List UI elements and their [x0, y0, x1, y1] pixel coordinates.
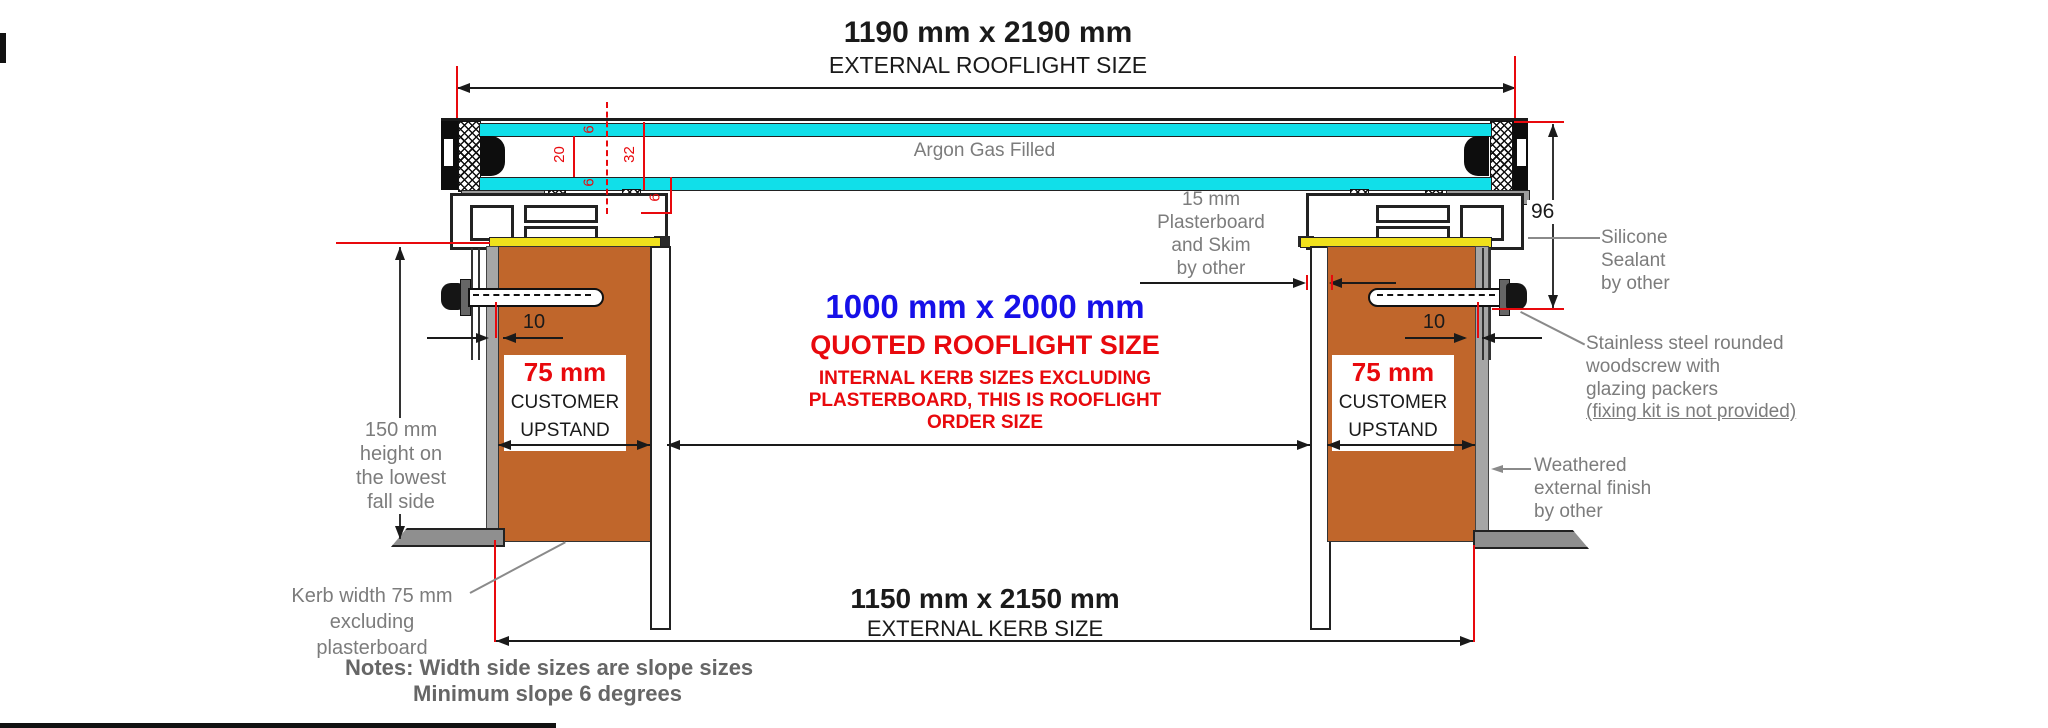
height-note: 150 mm height on the lowest fall side [337, 418, 465, 514]
offset-dim-right: 10 [1412, 311, 1456, 334]
weathered-foot-right [1473, 530, 1589, 549]
dim-line-unit [643, 122, 645, 190]
dim-bottom-pane: 6 [581, 178, 598, 186]
dim-cavity: 20 [551, 146, 568, 163]
external-rooflight-size: 1190 mm x 2190 mm [460, 16, 1516, 50]
silicone-note: Silicone Sealant by other [1601, 226, 1670, 295]
woodscrew-shaft-left [468, 288, 604, 307]
glazing-spacer-right [1464, 136, 1489, 176]
red-tick [1477, 302, 1479, 338]
scan-artifact-left [0, 33, 6, 63]
dim-top-pane: 6 [581, 125, 598, 133]
arrowhead [1460, 636, 1473, 646]
red-tick [495, 302, 497, 338]
internal-dim-line [667, 444, 1310, 446]
extension-line-right [1514, 56, 1516, 122]
upstand-line2: UPSTAND [1332, 417, 1454, 445]
arrowhead [476, 333, 489, 343]
glazing-top-edge [441, 118, 1528, 121]
upstand-size: 75 mm [1332, 355, 1454, 389]
edge-tape-hatch-right [1490, 121, 1513, 192]
offset-dim-left: 10 [512, 311, 556, 334]
plasterboard-pointer-inner [1341, 282, 1396, 284]
woodscrew-shaft-right [1368, 288, 1504, 307]
weathered-foot-left [391, 528, 505, 547]
weathered-pointer [1502, 468, 1531, 470]
arrowhead [667, 440, 680, 450]
arrowhead [1462, 440, 1475, 450]
upstand-line1: CUSTOMER [504, 389, 626, 417]
kerb-width-leader [470, 541, 566, 593]
arrowhead [1454, 333, 1467, 343]
quoted-size: 1000 mm x 2000 mm [690, 288, 1280, 326]
arrowhead [1482, 333, 1495, 343]
plasterboard-note: 15 mm Plasterboard and Skim by other [1145, 188, 1277, 280]
frame-height-ref-bottom [1492, 308, 1564, 310]
plasterboard-pointer [1140, 282, 1295, 284]
frame-chamber [1376, 205, 1450, 223]
arrowhead [1548, 295, 1558, 308]
quoted-label: QUOTED ROOFLIGHT SIZE [690, 330, 1280, 361]
extension-line-left [456, 66, 458, 122]
notes-line2: Minimum slope 6 degrees [413, 681, 682, 707]
frame-height-ref-top [1514, 121, 1564, 123]
upstand-width-dim-left [498, 444, 650, 446]
top-dimension-line [457, 87, 1516, 89]
arrowhead [503, 333, 516, 343]
red-tick [1306, 275, 1308, 290]
arrowhead [496, 636, 509, 646]
external-rooflight-label: EXTERNAL ROOFLIGHT SIZE [460, 52, 1516, 79]
frame-chamber [470, 205, 514, 241]
arrowhead [498, 440, 511, 450]
upstand-width-dim-right [1327, 444, 1475, 446]
dim-unit: 32 [621, 146, 638, 163]
dim-tick-edge [641, 212, 672, 214]
glazing-spacer-left [480, 136, 505, 176]
woodscrew-thread-right [1377, 294, 1495, 296]
dim-edge: 6 [647, 193, 664, 201]
kerb-top-ref-line [336, 242, 490, 244]
upstand-line2: UPSTAND [504, 417, 626, 445]
kerb-width-note: Kerb width 75 mm excluding plasterboard [272, 583, 472, 661]
dim-line-pane [606, 102, 608, 214]
dim-line-cavity [573, 136, 575, 177]
upstand-label-right: 75 mm CUSTOMER UPSTAND [1332, 355, 1454, 451]
dim-line-edge [670, 177, 672, 214]
upstand-label-left: 75 mm CUSTOMER UPSTAND [504, 355, 626, 451]
arrowhead [637, 440, 650, 450]
plasterboard-left [650, 246, 671, 630]
glazing-endcap-notch [1517, 139, 1526, 166]
silicone-leader [1528, 237, 1600, 239]
arrowhead [395, 526, 405, 539]
red-tick [1331, 275, 1333, 290]
woodscrew-thread-left [473, 294, 591, 296]
upstand-line1: CUSTOMER [1332, 389, 1454, 417]
frame-height-dim: 96 [1527, 200, 1558, 224]
glass-pane-top [479, 123, 1492, 137]
external-kerb-size: 1150 mm x 2150 mm [585, 583, 1385, 615]
extension-line-left [494, 540, 496, 642]
frame-chamber [1460, 205, 1504, 241]
woodscrew-head-left [441, 283, 462, 310]
notes-line1: Notes: Width side sizes are slope sizes [345, 655, 753, 681]
upstand-size: 75 mm [504, 355, 626, 389]
weathered-note: Weathered external finish by other [1534, 454, 1651, 523]
arrowhead [1293, 278, 1306, 288]
arrowhead [457, 83, 470, 93]
quoted-sublabel: INTERNAL KERB SIZES EXCLUDING PLASTERBOA… [690, 368, 1280, 434]
arrowhead [395, 247, 405, 260]
external-kerb-label: EXTERNAL KERB SIZE [585, 616, 1385, 642]
scan-artifact-bottom [0, 723, 556, 728]
arrowhead [1297, 440, 1310, 450]
screw-note: Stainless steel rounded woodscrew with g… [1586, 332, 1784, 401]
edge-tape-hatch-left [458, 121, 481, 192]
screw-note-leader [1520, 311, 1585, 345]
rooflight-section-diagram: 1190 mm x 2190 mm EXTERNAL ROOFLIGHT SIZ… [0, 0, 2048, 728]
arrowhead [1327, 440, 1340, 450]
screw-note-underlined: (fixing kit is not provided) [1586, 401, 1796, 423]
arrowhead [1548, 124, 1558, 137]
woodscrew-head-right [1506, 283, 1527, 310]
glazing-endcap-notch [444, 139, 453, 166]
frame-chamber [524, 205, 598, 223]
extension-line-right [1473, 545, 1475, 642]
